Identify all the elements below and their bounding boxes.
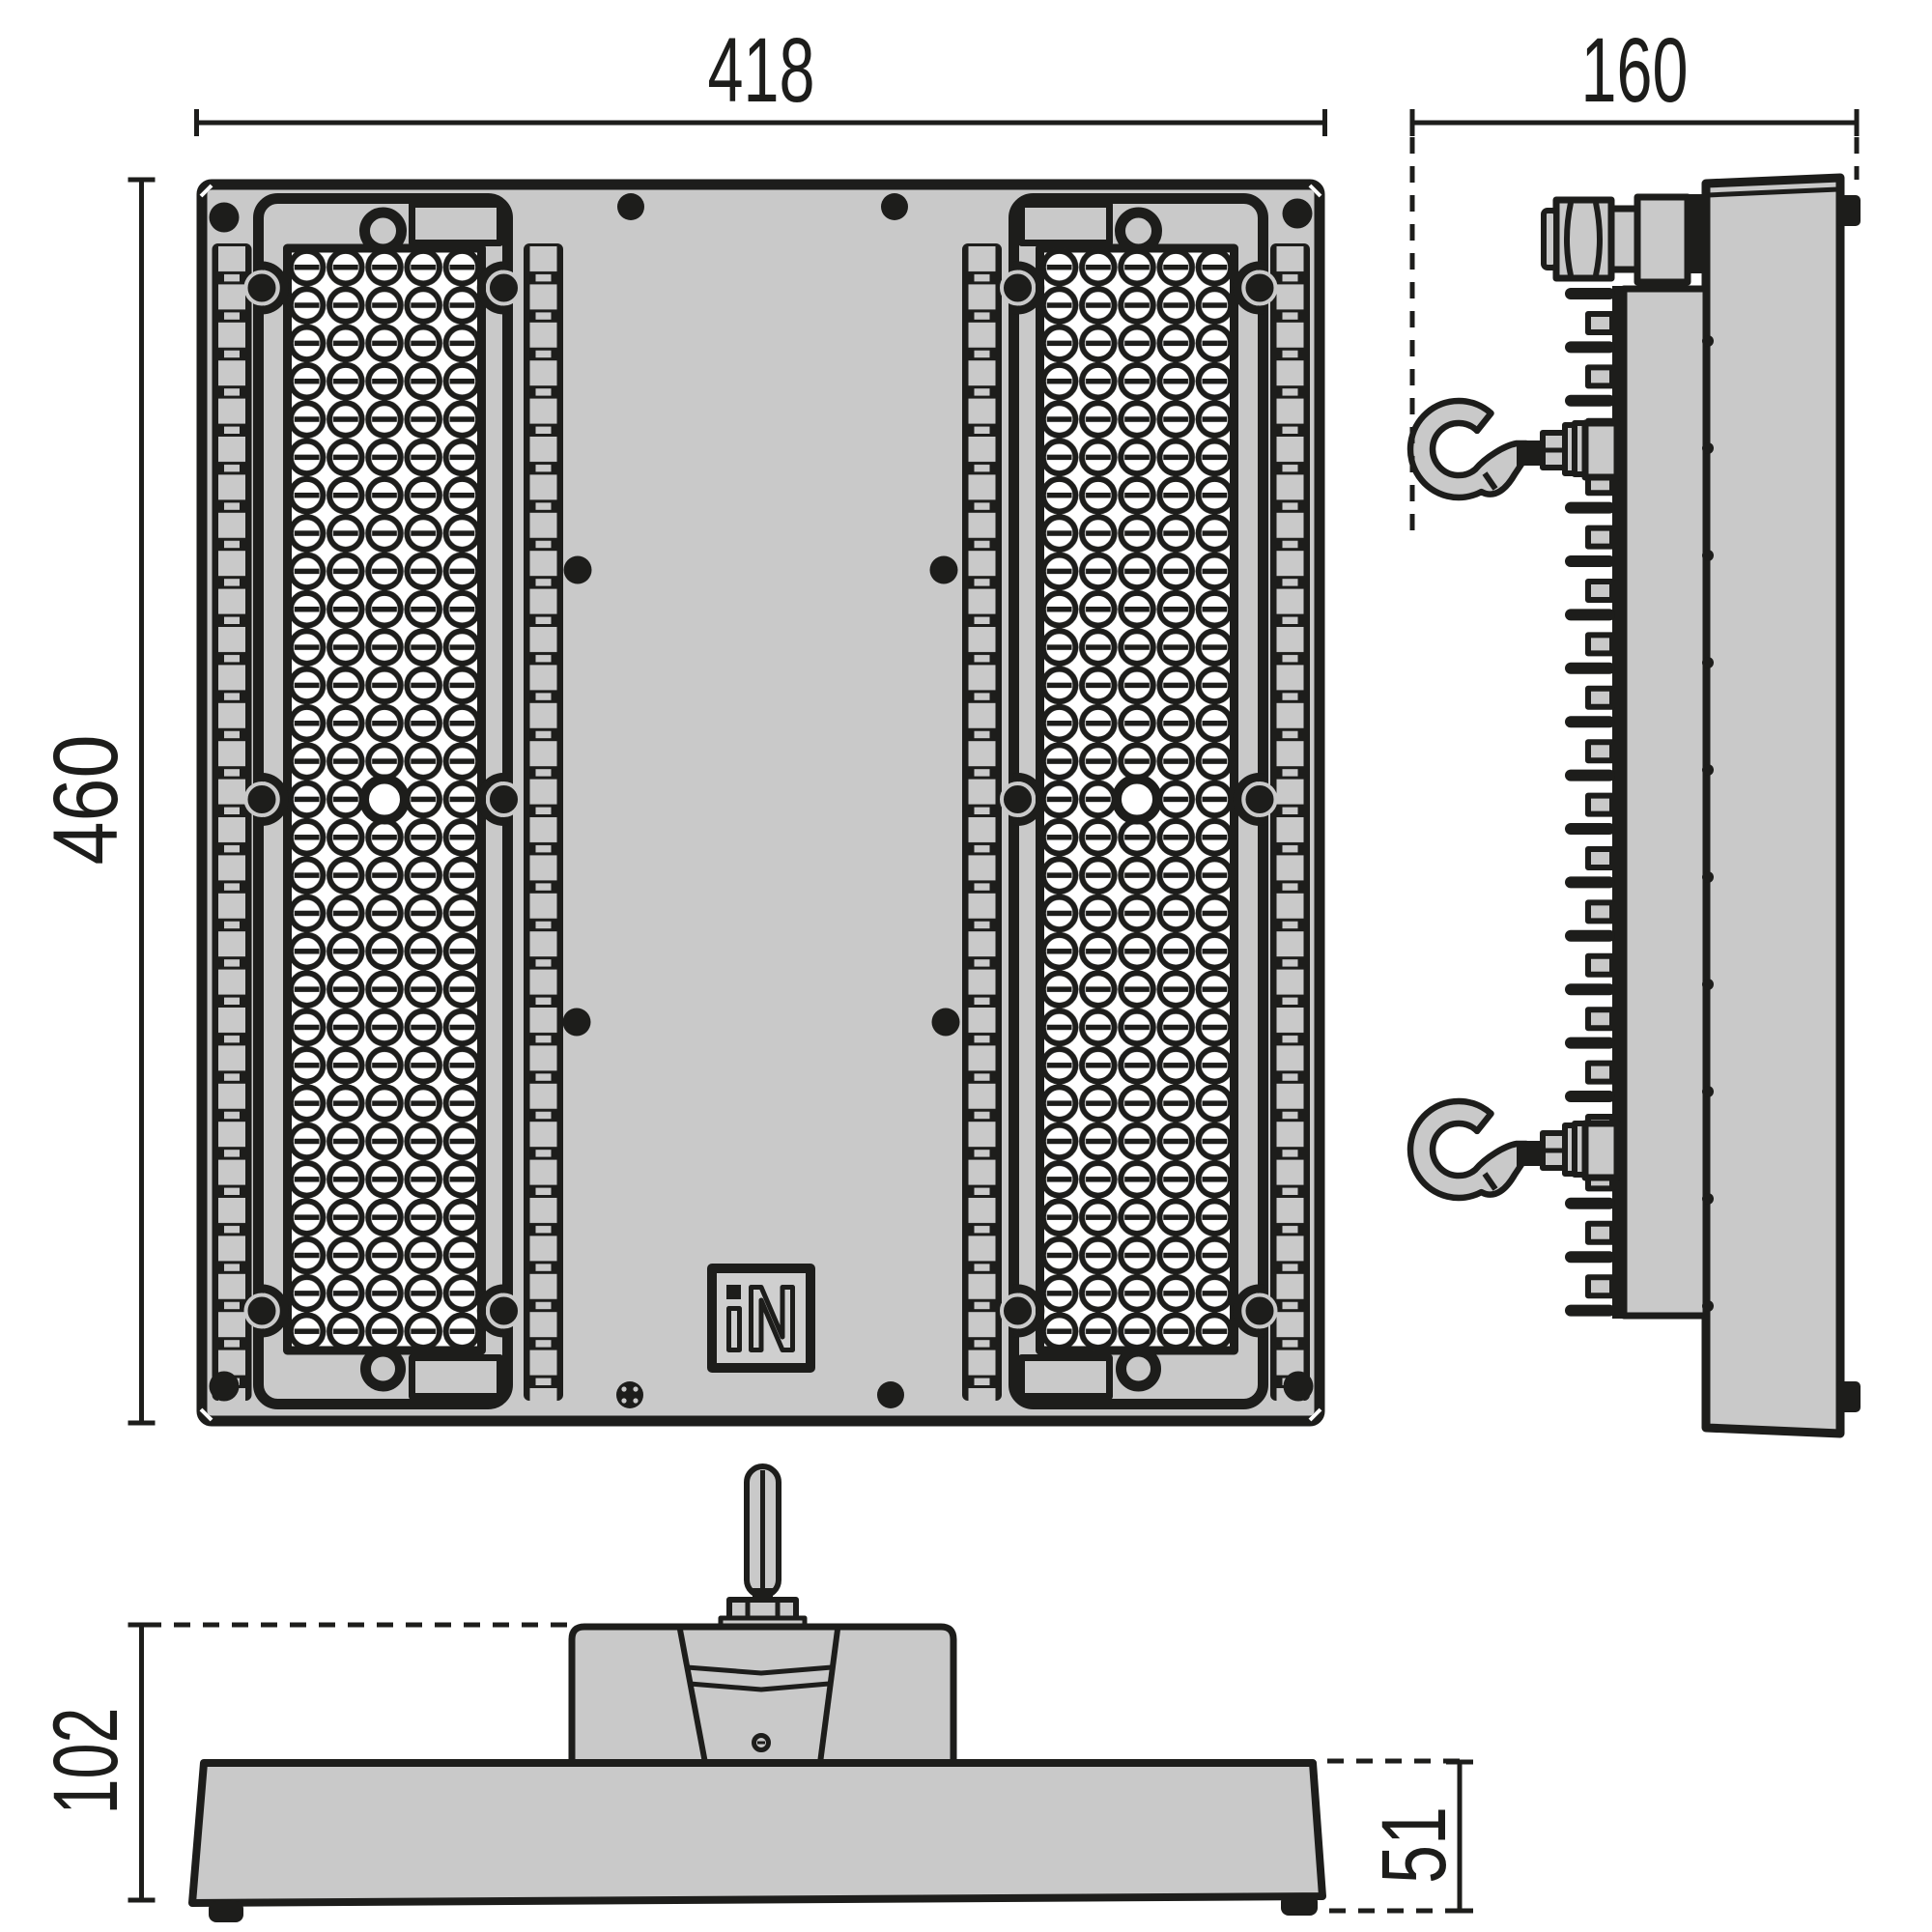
svg-text:460: 460 <box>35 735 137 866</box>
svg-text:160: 160 <box>1581 19 1689 122</box>
svg-text:418: 418 <box>708 19 815 122</box>
svg-text:102: 102 <box>35 1708 137 1815</box>
svg-text:51: 51 <box>1363 1806 1465 1884</box>
